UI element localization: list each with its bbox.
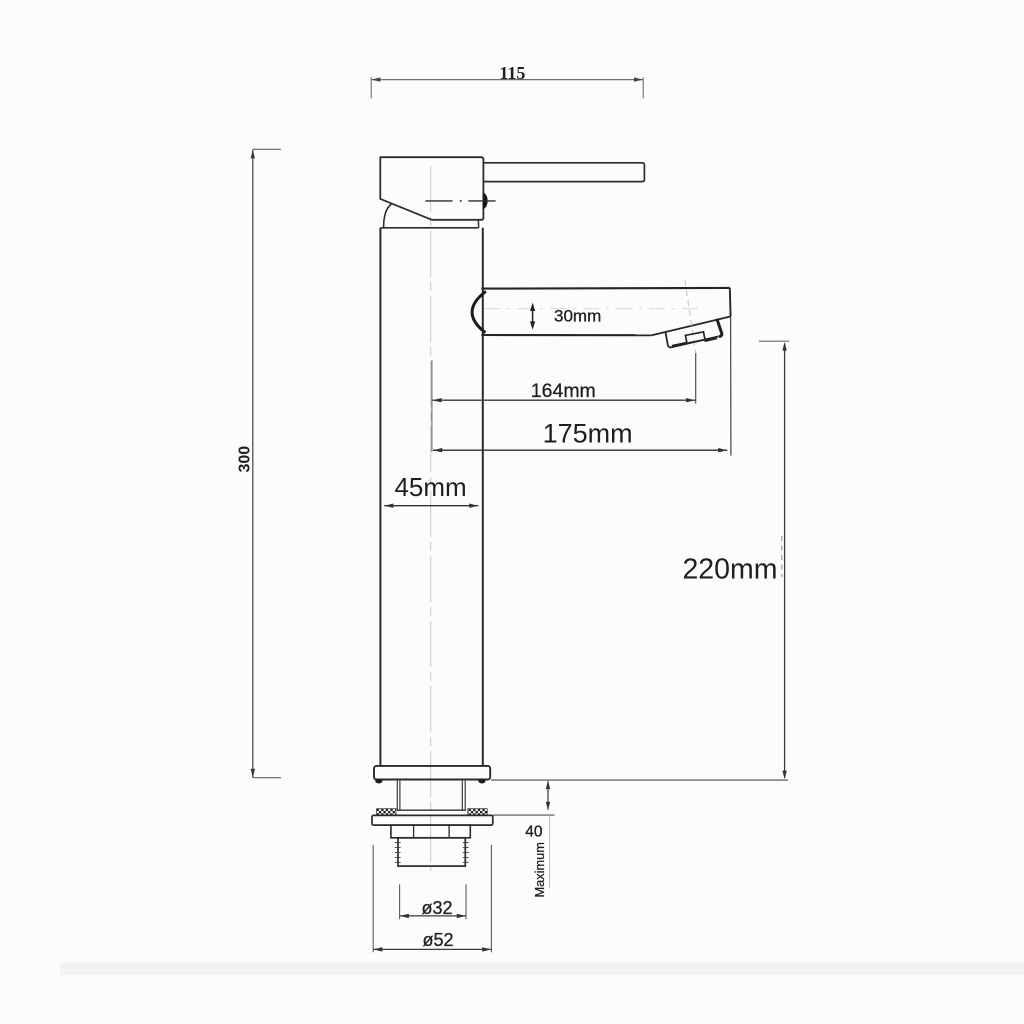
svg-text:175mm: 175mm (543, 418, 633, 448)
svg-text:40: 40 (525, 824, 543, 841)
svg-text:300: 300 (237, 446, 254, 473)
svg-text:Maximum: Maximum (532, 842, 547, 897)
svg-text:115: 115 (499, 63, 525, 83)
svg-text:45mm: 45mm (394, 472, 466, 502)
svg-text:30mm: 30mm (554, 307, 601, 326)
svg-text:220mm: 220mm (682, 554, 777, 586)
svg-text:164mm: 164mm (531, 380, 596, 402)
svg-text:ø52: ø52 (422, 930, 453, 950)
svg-text:ø32: ø32 (421, 898, 452, 918)
